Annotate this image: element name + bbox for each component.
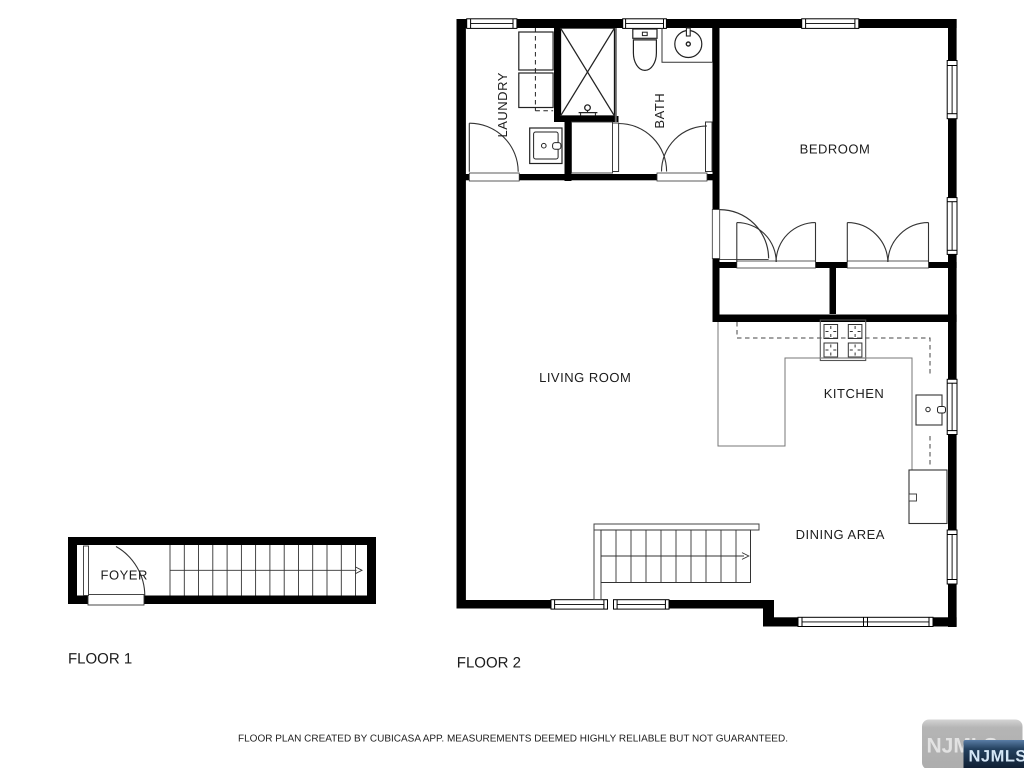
svg-text:LIVING ROOM: LIVING ROOM: [539, 370, 631, 385]
svg-text:FLOOR PLAN CREATED BY CUBICASA: FLOOR PLAN CREATED BY CUBICASA APP. MEAS…: [238, 734, 788, 745]
svg-text:FLOOR 1: FLOOR 1: [68, 651, 132, 668]
svg-text:DINING AREA: DINING AREA: [796, 527, 885, 542]
svg-text:FOYER: FOYER: [101, 568, 148, 583]
svg-text:KITCHEN: KITCHEN: [824, 386, 885, 401]
svg-text:BEDROOM: BEDROOM: [800, 142, 871, 157]
svg-text:BATH: BATH: [652, 93, 667, 129]
svg-text:NJMLS: NJMLS: [969, 748, 1024, 766]
svg-text:LAUNDRY: LAUNDRY: [495, 72, 510, 137]
svg-text:FLOOR 2: FLOOR 2: [457, 655, 521, 672]
